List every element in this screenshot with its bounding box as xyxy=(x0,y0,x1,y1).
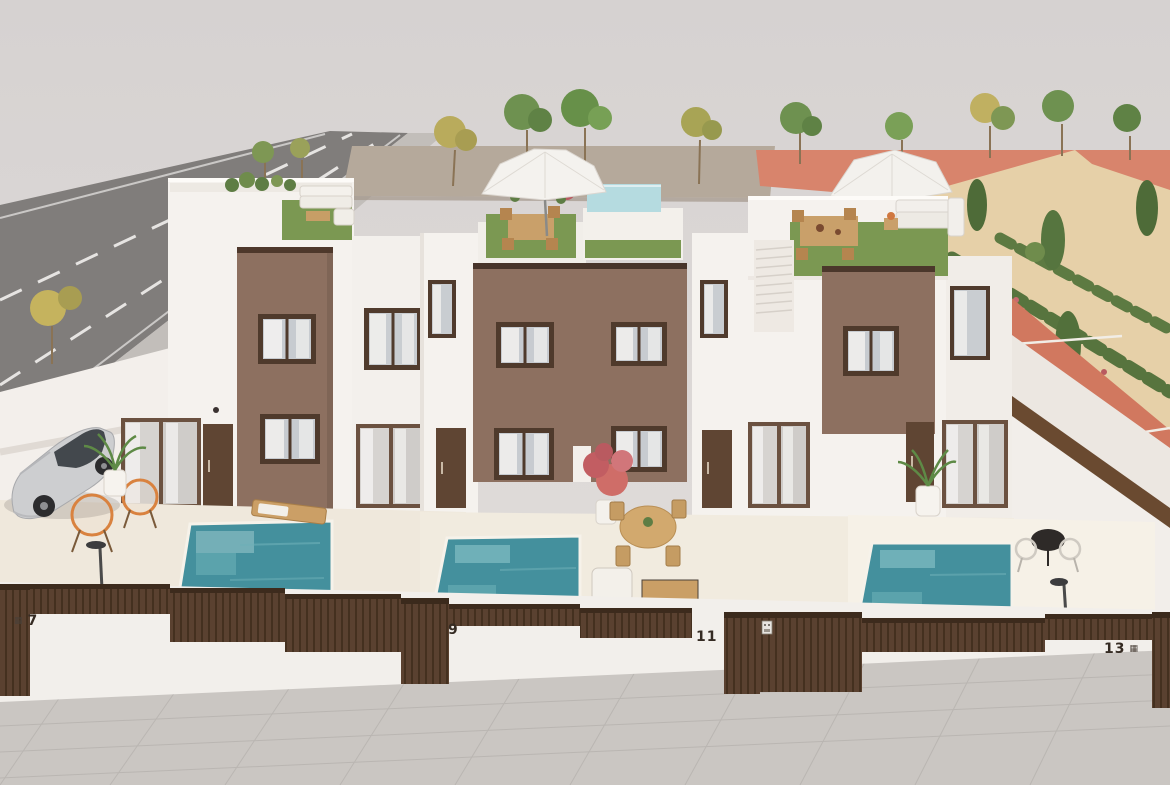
front-door xyxy=(436,428,466,508)
fence xyxy=(1045,614,1152,640)
fence xyxy=(760,612,862,692)
glass-slider-door xyxy=(356,424,426,508)
fence xyxy=(285,594,401,652)
gate xyxy=(0,584,30,696)
house-number-label: 9 xyxy=(448,623,459,637)
wall-light xyxy=(213,407,219,413)
fence xyxy=(862,618,1045,652)
window xyxy=(496,322,554,368)
window xyxy=(843,326,899,376)
gate xyxy=(401,598,449,684)
house-number-label: 7 xyxy=(28,614,39,628)
house-number-13: 13 ▦ xyxy=(1104,642,1139,656)
window xyxy=(428,280,456,338)
window xyxy=(950,286,990,360)
window xyxy=(260,414,320,464)
house-number-label: 13 xyxy=(1104,642,1125,656)
window xyxy=(258,314,316,364)
front-door xyxy=(203,424,233,510)
house-number-7: ▦ 7 xyxy=(14,614,38,628)
intercom-panel xyxy=(762,621,772,634)
fence xyxy=(580,608,692,638)
render-scene xyxy=(0,0,1170,785)
window xyxy=(494,428,554,480)
house-number-9: 9 xyxy=(448,623,459,637)
front-door xyxy=(702,430,732,508)
window xyxy=(700,280,728,338)
house-number-label: 11 xyxy=(696,630,717,644)
glass-slider-door xyxy=(942,420,1008,508)
house-number-11: 11 xyxy=(696,630,717,644)
mailbox-icon: ▦ xyxy=(1129,645,1139,654)
roof-sofa-set xyxy=(300,186,354,225)
glass-slider-door xyxy=(748,422,810,508)
fence xyxy=(30,584,170,614)
exterior-stairs-right xyxy=(754,240,794,332)
window xyxy=(364,308,422,370)
gate xyxy=(724,612,760,694)
brown-facade-panel xyxy=(237,247,333,543)
fence xyxy=(449,604,580,626)
window xyxy=(611,322,667,366)
gate xyxy=(1152,612,1170,708)
fence xyxy=(170,588,285,642)
architectural-render: ▦ 7 9 11 13 ▦ xyxy=(0,0,1170,785)
mailbox-icon: ▦ xyxy=(14,617,24,626)
